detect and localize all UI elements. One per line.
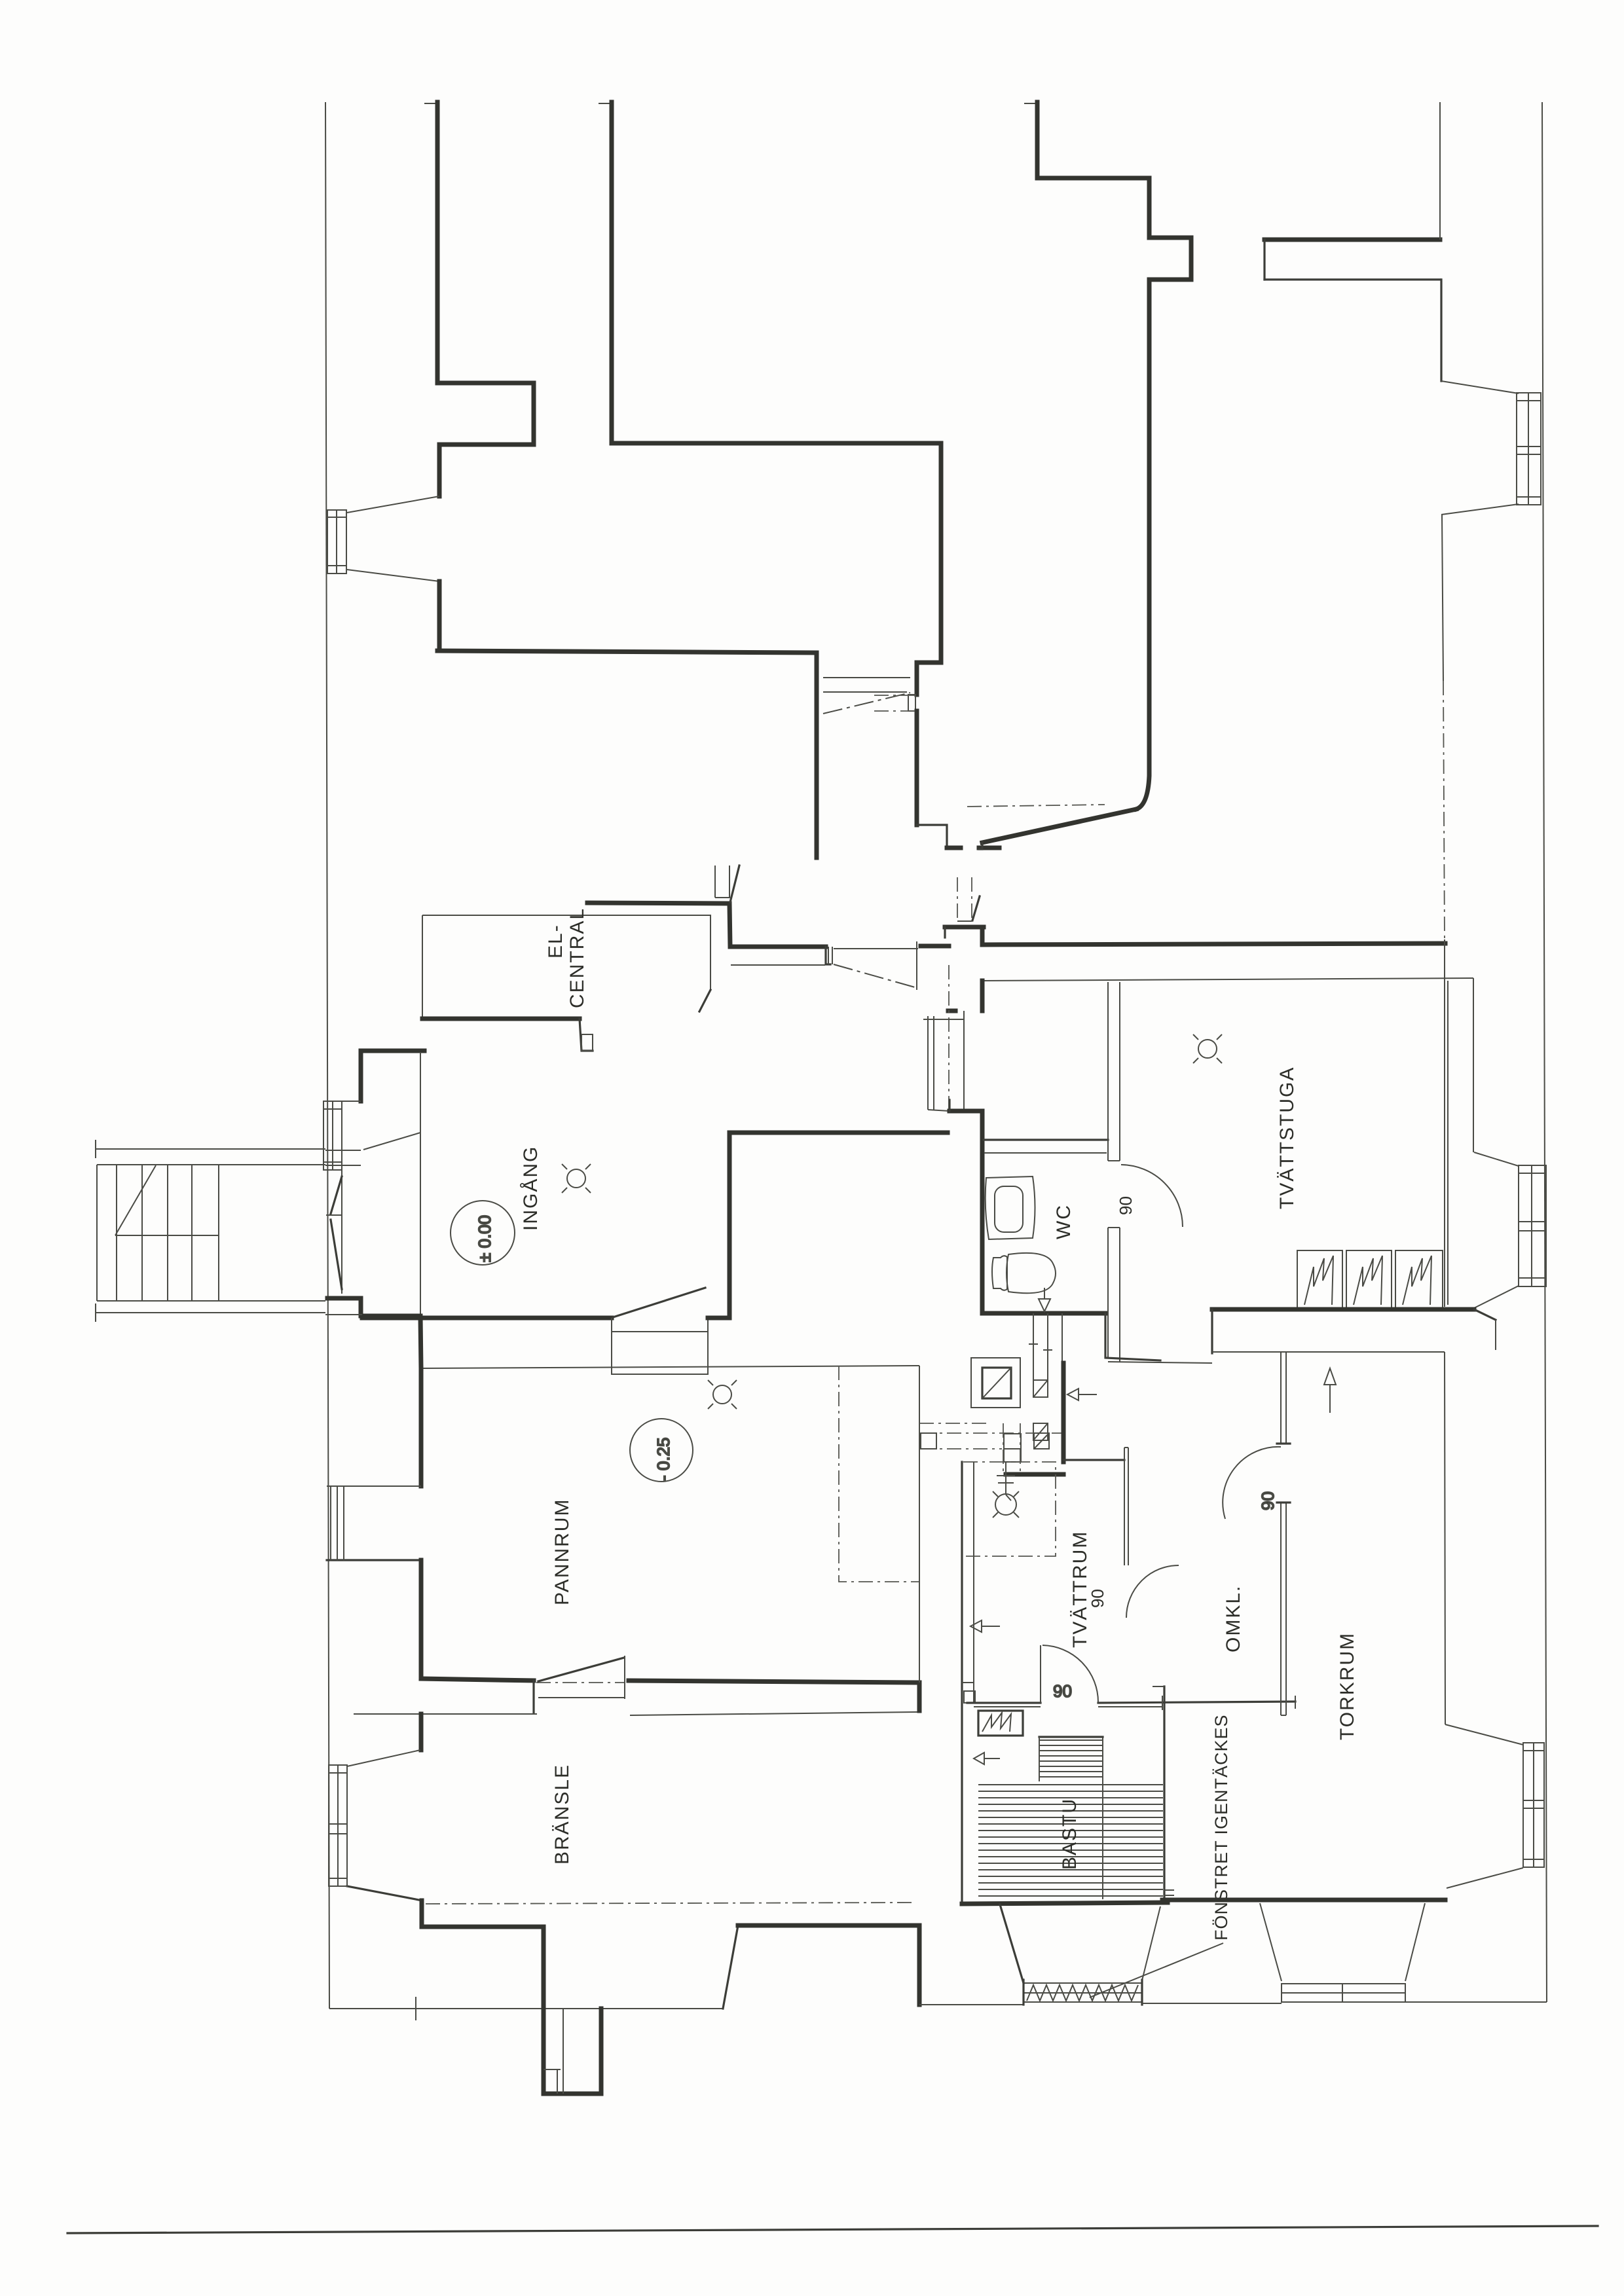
svg-text:90: 90: [1116, 1196, 1135, 1215]
svg-text:± 0.00: ± 0.00: [475, 1215, 494, 1262]
svg-text:PANNRUM: PANNRUM: [551, 1499, 573, 1605]
svg-text:FÖNSTRET IGENTÄCKES: FÖNSTRET IGENTÄCKES: [1211, 1714, 1231, 1941]
svg-text:BASTU: BASTU: [1059, 1798, 1080, 1870]
svg-text:- 0.25: - 0.25: [654, 1438, 673, 1482]
svg-text:CENTRAL: CENTRAL: [566, 907, 588, 1008]
svg-text:90: 90: [1258, 1491, 1278, 1510]
svg-text:TVÄTTSTUGA: TVÄTTSTUGA: [1276, 1066, 1298, 1209]
svg-text:90: 90: [1088, 1589, 1107, 1608]
svg-text:INGÅNG: INGÅNG: [520, 1146, 542, 1231]
svg-text:OMKL.: OMKL.: [1223, 1585, 1244, 1652]
svg-text:TORKRUM: TORKRUM: [1337, 1632, 1358, 1740]
svg-text:EL-: EL-: [545, 924, 566, 958]
svg-text:WC: WC: [1053, 1204, 1075, 1239]
svg-text:90: 90: [1053, 1681, 1072, 1701]
svg-text:BRÄNSLE: BRÄNSLE: [551, 1764, 573, 1865]
